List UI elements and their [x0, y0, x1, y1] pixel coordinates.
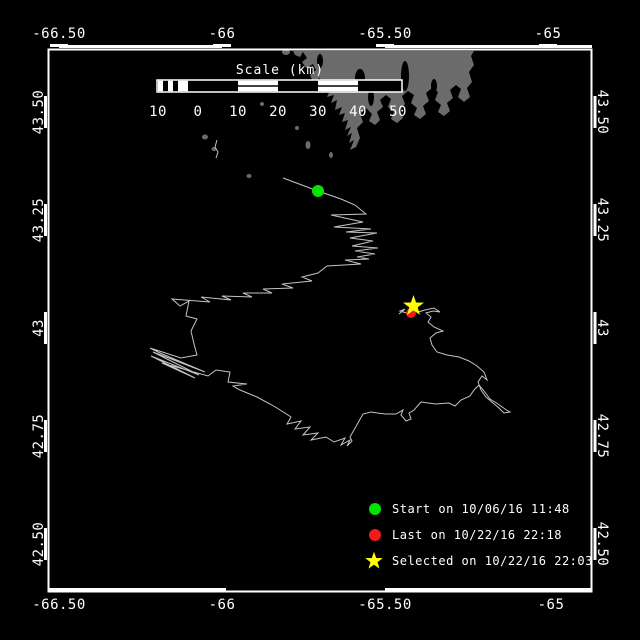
scale-tick-label: 10: [229, 104, 247, 120]
lat-tick-label-right: 43.25: [594, 198, 610, 243]
scale-tick-label: 20: [269, 104, 287, 120]
legend-selected-label: Selected on 10/22/16 22:03: [392, 554, 593, 568]
drifter-track: [150, 178, 510, 446]
scale-bar: [157, 80, 402, 92]
lat-tick-label-left: 42.75: [31, 414, 47, 459]
lon-tick-label-bottom: -65: [538, 597, 565, 613]
legend-start-dot-icon: [369, 503, 381, 515]
scale-tick-label: 0: [194, 104, 203, 120]
lat-tick-label-right: 43.50: [594, 90, 610, 135]
lon-tick-label-top: -66.50: [32, 26, 86, 42]
legend-last-dot-icon: [369, 529, 381, 541]
lat-tick-label-right: 43: [594, 319, 610, 337]
lon-tick-label-top: -65.50: [358, 26, 412, 42]
lat-tick-label-left: 43.50: [31, 90, 47, 135]
lat-tick-label-left: 43: [31, 319, 47, 337]
scale-bar-title: Scale (km): [236, 63, 324, 78]
drifter-track-map: -66.50 -66 -65.50 -65 -66.50 -66 -65.50 …: [0, 0, 640, 640]
lat-tick-label-left: 42.50: [31, 522, 47, 567]
lat-tick-label-right: 42.50: [594, 522, 610, 567]
lat-tick-label-left: 43.25: [31, 198, 47, 243]
scale-tick-label: 50: [389, 104, 407, 120]
legend-selected-star-icon: [365, 552, 383, 569]
legend-last-label: Last on 10/22/16 22:18: [392, 528, 562, 542]
lon-tick-label-bottom: -65.50: [358, 597, 412, 613]
start-position-marker[interactable]: [312, 185, 324, 197]
scale-tick-label: 10: [149, 104, 167, 120]
lon-tick-label-bottom: -66: [209, 597, 236, 613]
scale-tick-label: 30: [309, 104, 327, 120]
legend-markers: [365, 503, 383, 569]
legend-start-label: Start on 10/06/16 11:48: [392, 502, 570, 516]
lon-tick-label-top: -65: [535, 26, 562, 42]
scale-tick-label: 40: [349, 104, 367, 120]
lat-tick-label-right: 42.75: [594, 414, 610, 459]
map-canvas: [0, 0, 640, 640]
lon-tick-label-bottom: -66.50: [32, 597, 86, 613]
lon-tick-label-top: -66: [209, 26, 236, 42]
